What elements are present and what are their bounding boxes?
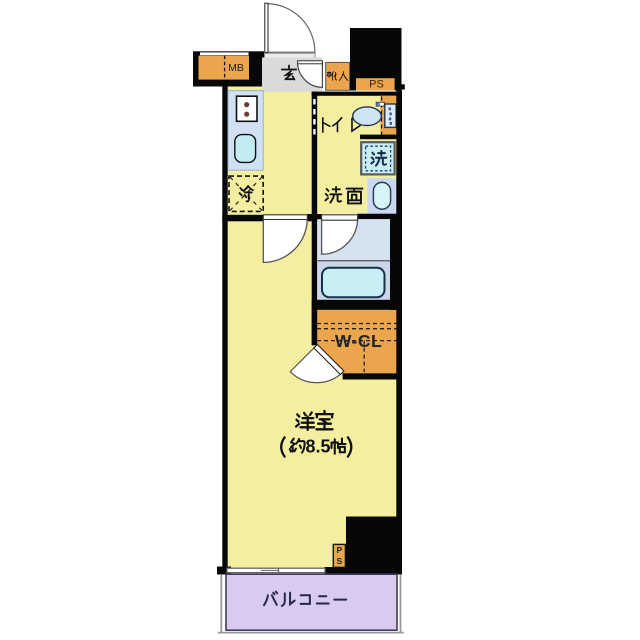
svg-text:MB: MB: [228, 62, 244, 74]
svg-text:S: S: [336, 556, 342, 566]
svg-text:P: P: [336, 545, 342, 555]
svg-text:8.5: 8.5: [305, 437, 330, 457]
svg-text:PS: PS: [369, 79, 384, 91]
svg-text:W-CL: W-CL: [335, 331, 382, 351]
